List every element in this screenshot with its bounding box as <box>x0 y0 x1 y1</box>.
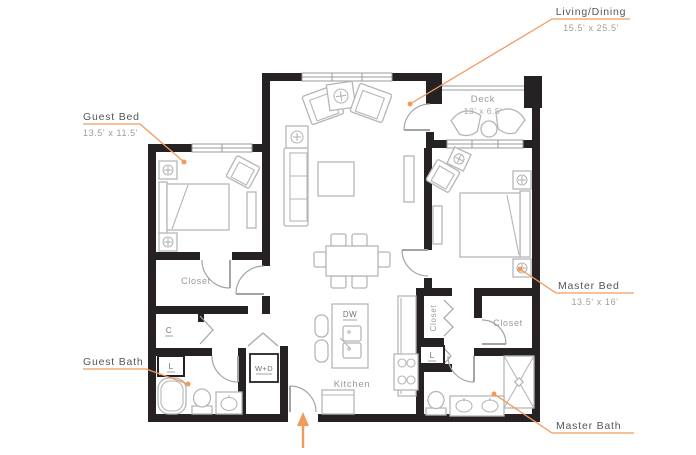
master-bath-label: Master Bath <box>556 420 621 432</box>
master-double-vanity <box>450 396 504 416</box>
media-console <box>404 156 414 202</box>
deck-door <box>404 104 430 130</box>
guest-chair <box>226 155 260 188</box>
hall-closet-label: Closet <box>429 304 438 331</box>
master-bed-label: Master Bed <box>558 280 620 292</box>
master-bath-dot <box>492 392 497 397</box>
coffee-table <box>318 162 354 196</box>
closet-hall-door <box>236 266 264 294</box>
entry-arrow-icon <box>297 412 309 448</box>
guest-bed-furniture <box>159 161 229 251</box>
master-bed-dot <box>518 267 523 272</box>
master-shower <box>504 356 534 408</box>
master-bedroom-door <box>402 250 428 276</box>
master-bath-door <box>448 356 474 382</box>
refrigerator <box>322 390 354 414</box>
deck-label: Deck <box>471 94 495 105</box>
master-bed-dims: 13.5' x 16' <box>571 297 618 307</box>
master-bed-furniture <box>460 171 531 277</box>
side-table-lamp <box>286 126 308 148</box>
living-dining-label: Living/Dining <box>556 6 627 18</box>
master-bed-window <box>447 140 523 148</box>
guest-bed-window <box>192 144 252 152</box>
floor-plan-svg: Deck 13' x 6.5' Kitchen Closet Closet Cl… <box>0 0 696 455</box>
master-dresser <box>433 206 442 244</box>
guest-toilet <box>192 389 212 414</box>
living-window <box>302 73 392 81</box>
callout-guest-bed: Guest Bed 13.5' x 11.5' <box>83 111 187 165</box>
living-dining-dot <box>408 102 413 107</box>
guest-dresser <box>247 192 256 228</box>
armchair <box>350 83 392 123</box>
guest-bed-dims: 13.5' x 11.5' <box>83 128 138 138</box>
guest-bed-mattress <box>167 184 229 230</box>
living-dining-dims: 15.5' x 25.5' <box>563 23 619 33</box>
sink-basin <box>343 343 361 358</box>
kitchen-label: Kitchen <box>334 379 371 390</box>
entry-door <box>290 386 316 412</box>
hall-closet-bifold <box>444 300 453 336</box>
dining-set <box>314 234 390 288</box>
kitchen-stools <box>315 315 328 362</box>
coat-closet-label: C <box>166 326 172 335</box>
sink-basin <box>343 326 361 341</box>
deck-dims: 13' x 6.5' <box>464 106 503 116</box>
range-stove <box>394 354 418 390</box>
guest-vanity-sink <box>216 392 242 414</box>
master-bed-mattress <box>460 193 520 257</box>
master-bed-headboard <box>520 191 530 257</box>
guest-bed-leader <box>140 124 184 162</box>
linen-guest-label: L <box>169 362 174 371</box>
guest-closet-label: Closet <box>181 276 211 286</box>
guest-bath-label: Guest Bath <box>83 356 144 368</box>
master-toilet <box>426 392 446 416</box>
dishwasher-label: DW <box>343 310 357 319</box>
washer-dryer-label: W+D <box>255 364 273 373</box>
guest-bathtub <box>158 378 186 414</box>
washer-dryer-bifold <box>248 333 278 346</box>
master-closet-label: Closet <box>493 318 523 328</box>
deck-railing <box>442 86 524 90</box>
deck-table <box>481 121 497 137</box>
guest-bath-door <box>212 356 238 382</box>
guest-bed-headboard <box>159 182 167 234</box>
guest-bed-label: Guest Bed <box>83 111 140 123</box>
linen-hall-label: L <box>430 351 435 360</box>
floor-plan-page: Deck 13' x 6.5' Kitchen Closet Closet Cl… <box>0 0 696 455</box>
guest-bed-dot <box>182 160 187 165</box>
guest-bath-dot <box>186 382 191 387</box>
sofa <box>284 148 308 226</box>
